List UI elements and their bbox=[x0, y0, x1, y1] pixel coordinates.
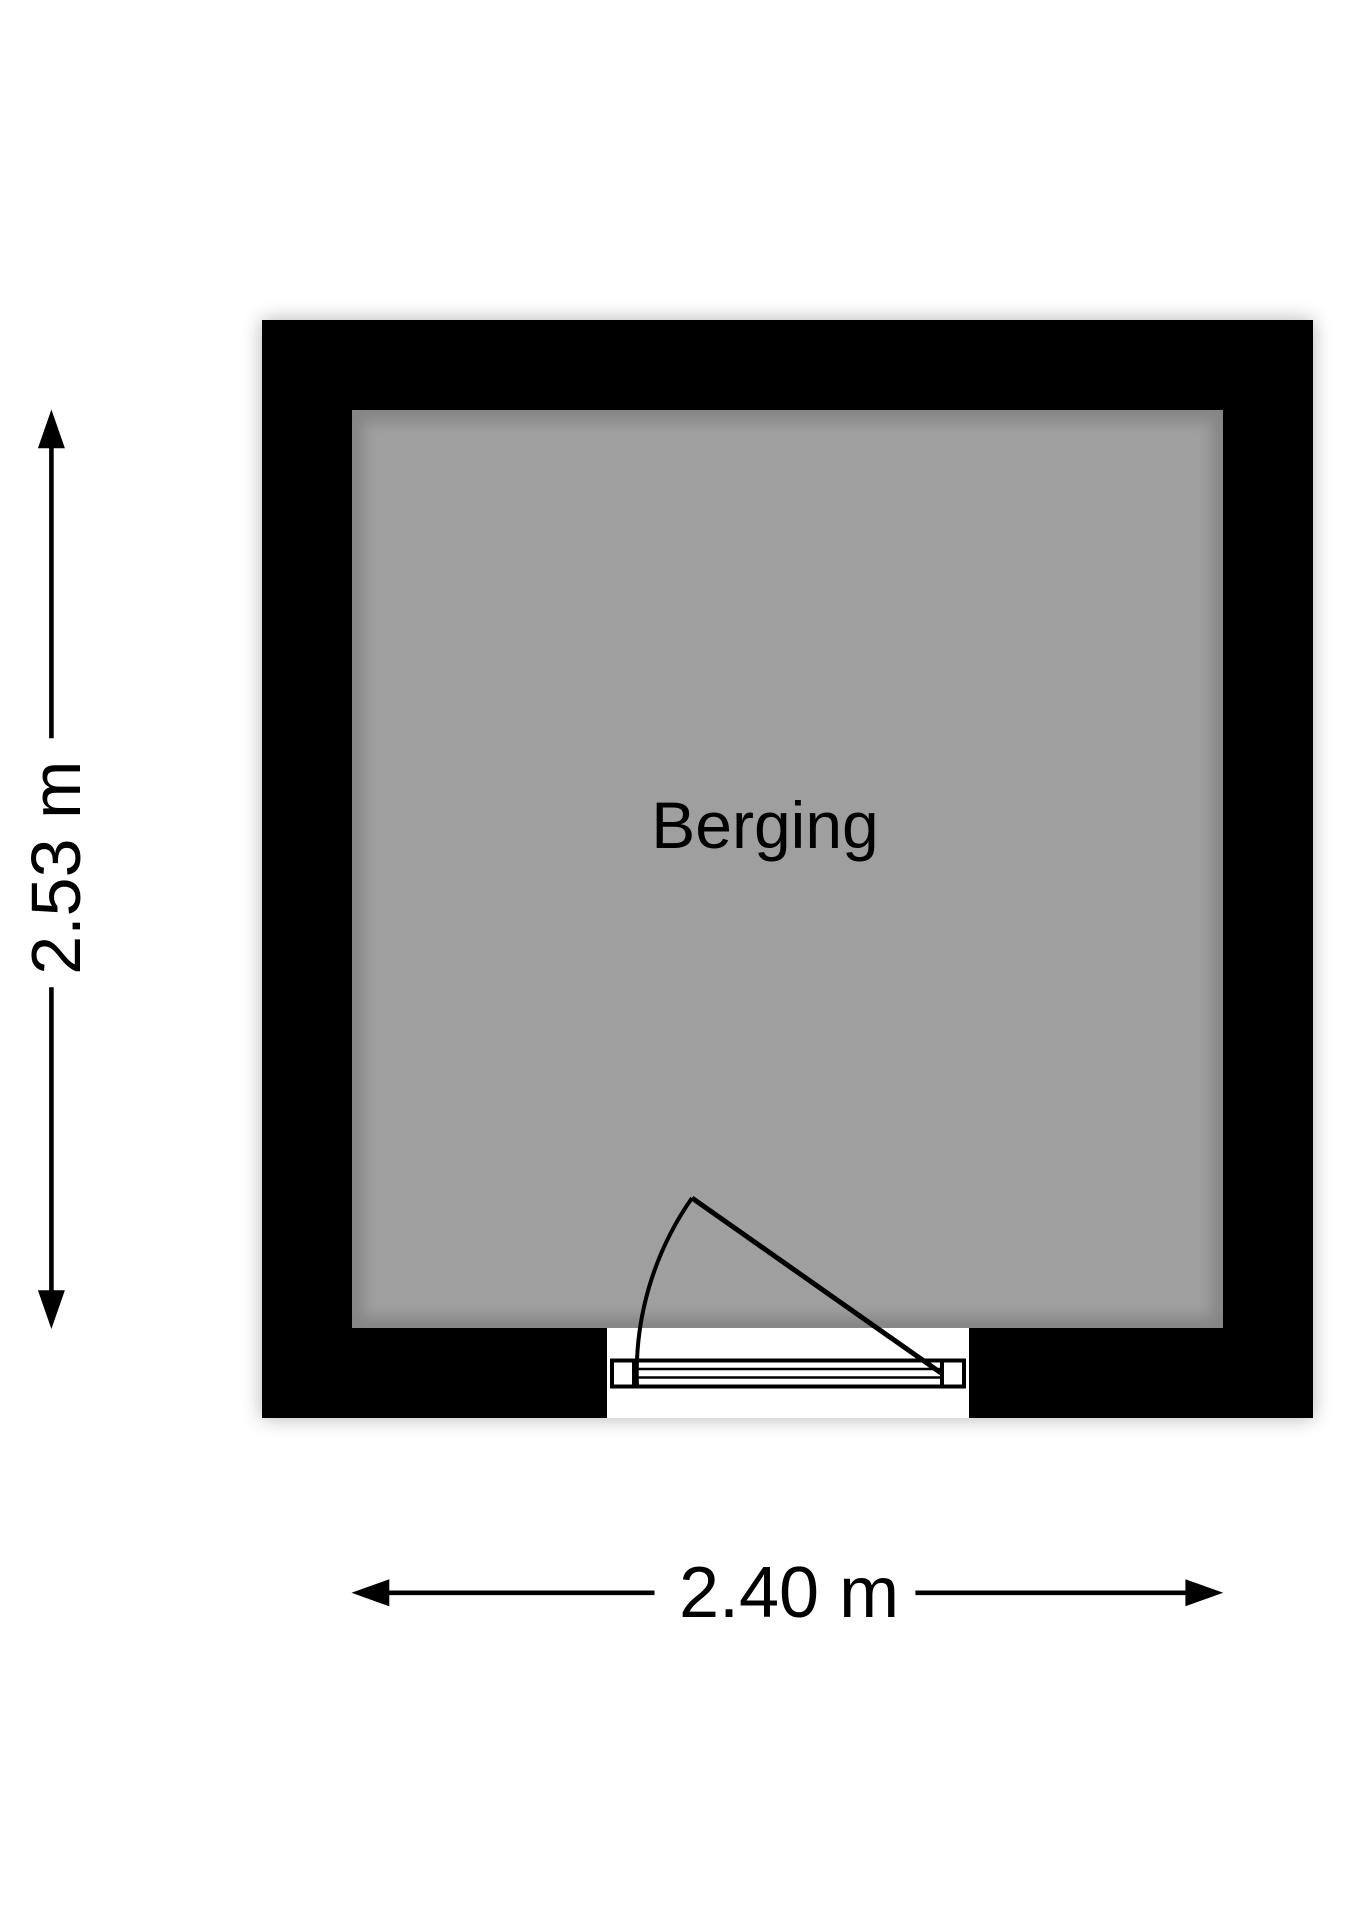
svg-text:2.40 m: 2.40 m bbox=[679, 1553, 899, 1633]
svg-text:Berging: Berging bbox=[651, 788, 879, 862]
svg-text:2.53 m: 2.53 m bbox=[17, 761, 95, 975]
